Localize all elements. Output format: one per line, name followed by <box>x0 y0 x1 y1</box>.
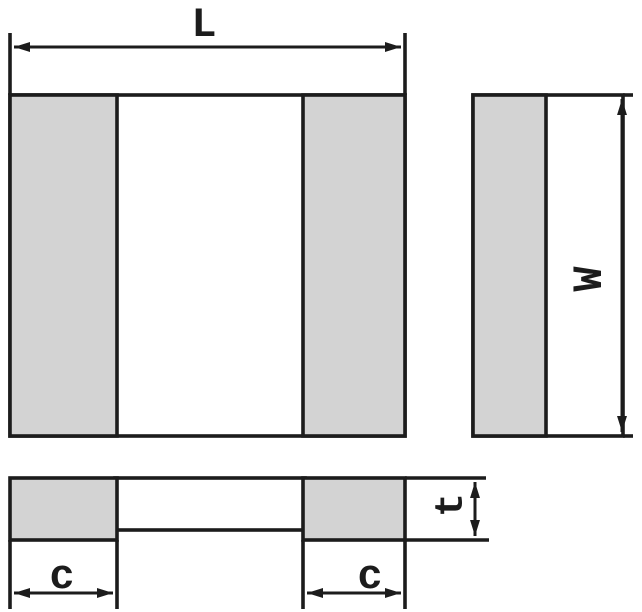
bottom-view-body <box>115 478 305 530</box>
chip-dimension-diagram: L W t c <box>0 0 642 612</box>
label-thickness: t <box>430 493 475 517</box>
label-length: L <box>191 1 216 49</box>
bottom-view: t c c <box>10 478 489 609</box>
label-width: W <box>566 266 614 292</box>
dimension-drawing-canvas: L W t c <box>0 0 642 612</box>
side-view-electrode <box>473 95 546 436</box>
top-view-left-electrode <box>10 95 117 436</box>
top-view: L <box>10 1 405 436</box>
bottom-view-right-electrode <box>303 478 405 540</box>
label-terminal-left: c <box>49 553 74 601</box>
side-view: W <box>473 95 633 436</box>
label-terminal-right: c <box>357 553 382 601</box>
top-view-right-electrode <box>303 95 405 436</box>
bottom-view-left-electrode <box>10 478 117 540</box>
